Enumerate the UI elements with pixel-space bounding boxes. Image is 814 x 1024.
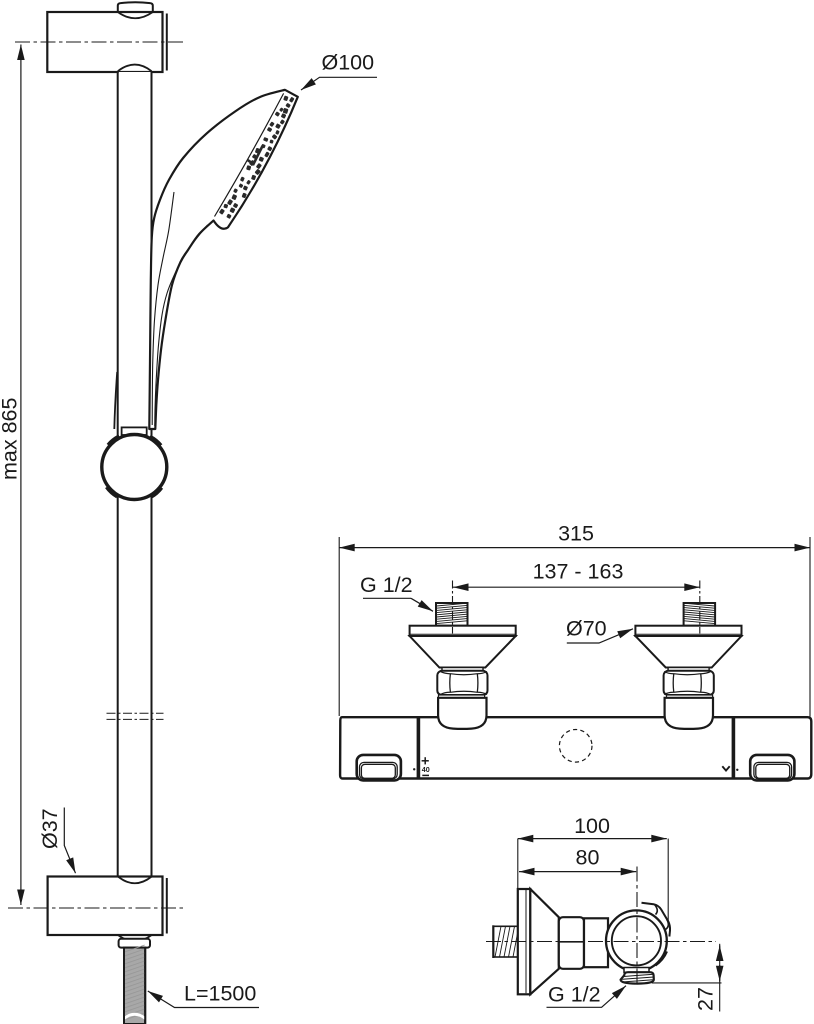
svg-text:100: 100: [574, 814, 610, 838]
svg-text:27: 27: [694, 987, 718, 1011]
svg-text:Ø37: Ø37: [38, 808, 62, 849]
svg-text:G 1/2: G 1/2: [548, 983, 601, 1007]
svg-text:L=1500: L=1500: [184, 982, 256, 1006]
svg-text:40: 40: [422, 765, 430, 774]
svg-text:max 865: max 865: [0, 397, 22, 480]
svg-text:80: 80: [576, 846, 600, 870]
svg-text:137 - 163: 137 - 163: [533, 560, 624, 584]
svg-text:Ø100: Ø100: [322, 51, 375, 75]
svg-text:Ø70: Ø70: [566, 617, 607, 641]
svg-text:G 1/2: G 1/2: [360, 573, 413, 597]
svg-text:315: 315: [558, 522, 594, 546]
